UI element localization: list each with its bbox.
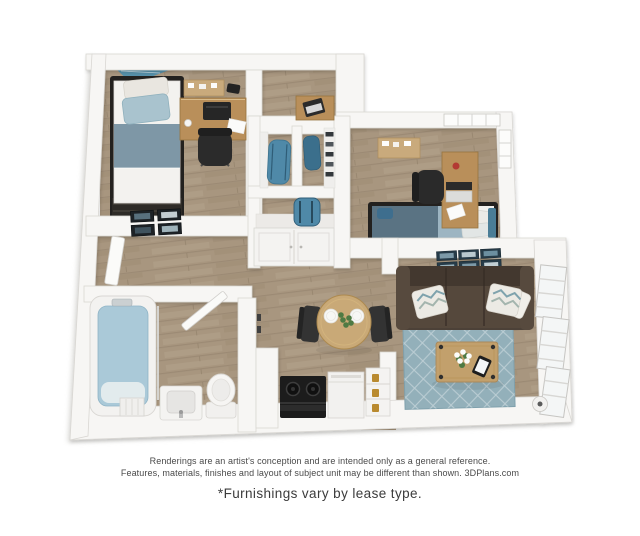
wall-hook [257, 326, 261, 333]
hamper [120, 398, 144, 416]
jars [372, 374, 379, 412]
closet-backpack [294, 198, 320, 226]
disclaimer: Renderings are an artist's conception an… [0, 456, 640, 479]
closet-duffel-2 [303, 135, 321, 170]
kitchen-shelf [366, 368, 390, 416]
wall-closet-divider [292, 126, 302, 192]
tub-faucet [112, 299, 132, 306]
bed-2-teal-bag [377, 208, 393, 219]
closet-cabinet [254, 228, 334, 266]
page: Renderings are an artist's conception an… [0, 0, 640, 536]
bed-1 [110, 76, 184, 226]
wall-north-bedroom1 [86, 54, 364, 70]
disclaimer-line-2: Features, materials, finishes and layout… [0, 468, 640, 480]
stove [280, 376, 326, 418]
wall-kitchen-column [256, 348, 278, 428]
wall-hook [257, 314, 261, 321]
office-chair-bedroom1 [198, 128, 232, 166]
wall-bathroom-right [238, 298, 256, 432]
wall-closet-right [334, 116, 350, 268]
toilet [206, 374, 236, 418]
office-chair-bedroom2 [412, 170, 444, 204]
closet-duffel-1 [267, 139, 291, 184]
dining-chair-right [368, 305, 393, 343]
bed-2-teal-cushion [488, 208, 496, 238]
desk-bedroom2 [442, 152, 478, 228]
sink-vanity [160, 386, 202, 420]
coffee-table [432, 342, 504, 390]
disclaimer-line-1: Renderings are an artist's conception an… [0, 456, 640, 468]
floor-lamp [533, 397, 548, 412]
desk-nook [296, 96, 334, 120]
wall-stub-living-west [382, 238, 398, 274]
desk-lamp [453, 163, 460, 170]
wall-step-top [336, 54, 364, 120]
bed-1-pillow-blue [122, 93, 171, 124]
lease-footnote: *Furnishings vary by lease type. [0, 485, 640, 502]
dining-table [317, 295, 371, 349]
dishwasher [328, 372, 364, 418]
printer [203, 102, 231, 120]
bed-1-duvet-band [114, 124, 180, 168]
laptop-bedroom2 [446, 182, 472, 190]
